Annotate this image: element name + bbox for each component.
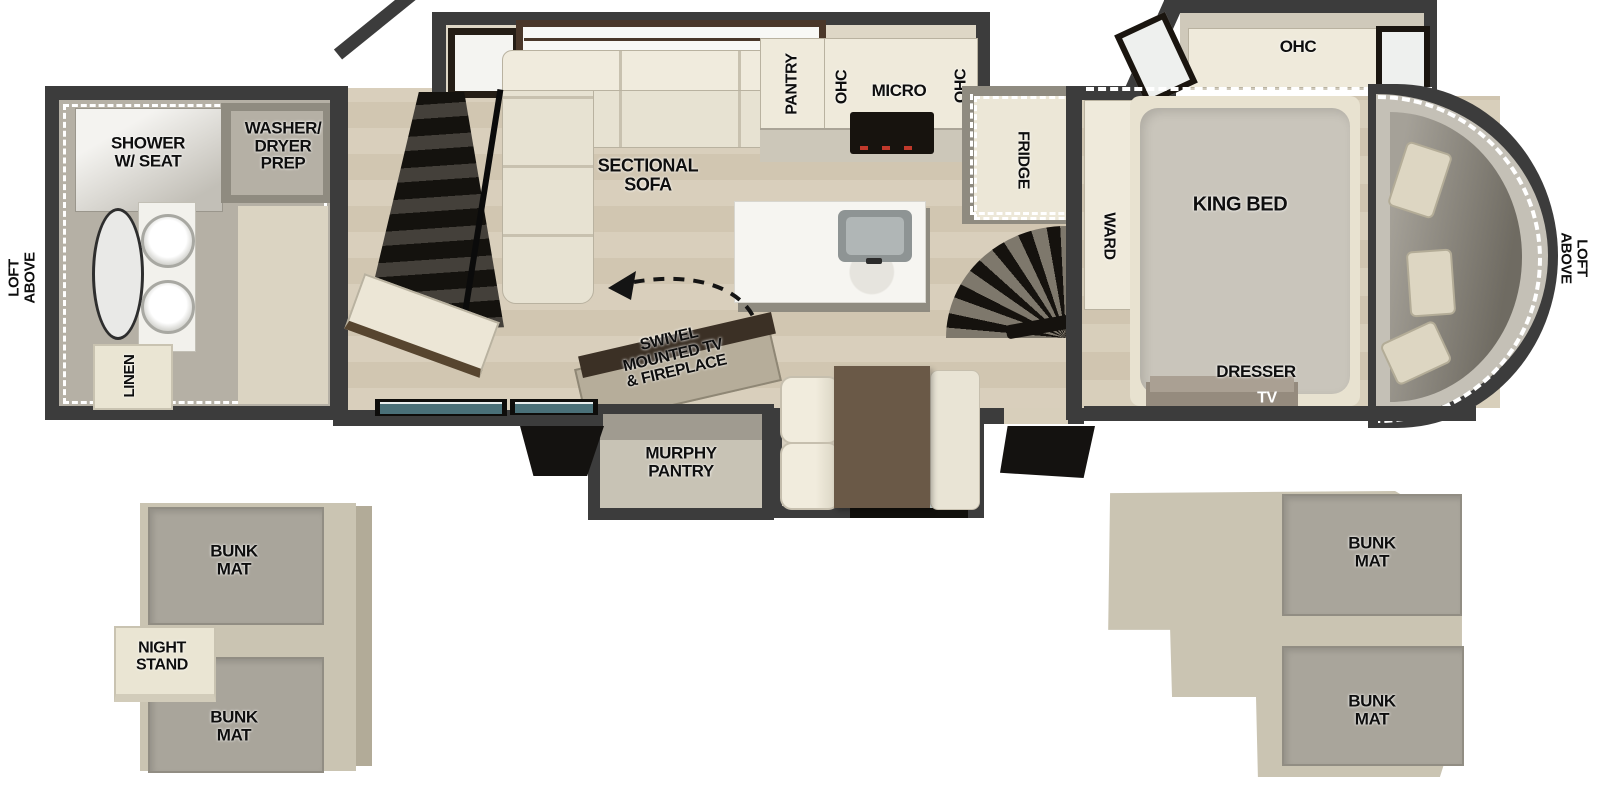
ohc-left-label: OHC [835,70,852,104]
rear-loft-platform-edge [356,506,372,766]
island-faucet [866,258,882,264]
front-loft-bunk-bottom-label: BUNK MAT [1348,692,1396,727]
pantry-label: PANTRY [785,53,802,115]
wardrobe [1084,100,1134,310]
dinette-table [834,366,930,508]
ohc-slide-top-wall [1164,0,1436,13]
vanity-mirror [92,208,144,340]
sectional-sofa-label: SECTIONAL SOFA [598,156,698,193]
living-window-1-glass [380,402,502,414]
bedroom-left-wall [1066,86,1082,420]
loft-dash-fridge-left [970,94,973,212]
tv-label: TV [1257,391,1277,408]
diagonal-front-wall [334,0,440,60]
ward-label: WARD [1100,212,1117,259]
rear-loft-bunk-bottom-label: BUNK MAT [210,708,258,743]
micro-label: MICRO [872,82,927,100]
dinette-chair-1 [780,376,840,444]
fridge-label: FRIDGE [1014,131,1031,189]
sofa-chaise [502,90,594,304]
front-loft-bunk-top-label: BUNK MAT [1348,534,1396,569]
stove-knob-3 [904,146,912,150]
night-stand-label: NIGHT STAND [136,640,188,673]
stove-knob-1 [860,146,868,150]
dinette-chair-2 [780,442,840,510]
bedroom-bottom-wall [1084,406,1476,421]
entry-door-opening [1004,408,1068,424]
loft-above-right-label: LOFT ABOVE [1558,232,1589,283]
island-sink-basin [846,217,904,255]
dresser-label: DRESSER [1216,363,1295,381]
entry-steps [1000,426,1095,478]
vanity-sink-2 [141,280,195,334]
bathroom-landing [238,206,328,404]
floorplan-canvas: SHOWER W/ SEAT WASHER/ DRYER PREP LINEN … [0,0,1600,786]
king-bed-mattress [1140,108,1350,394]
dinette-bench [930,370,980,510]
vanity-sink-1 [141,214,195,268]
murphy-pantry-back [600,414,762,440]
bath-living-divider-wall [330,86,348,420]
rear-loft-bunk-top-label: BUNK MAT [210,542,258,577]
shower-label: SHOWER W/ SEAT [111,134,185,169]
loft-above-left-label: LOFT ABOVE [6,252,37,303]
linen-label: LINEN [122,354,138,397]
stove-knob-2 [882,146,890,150]
king-bed-label: KING BED [1193,195,1288,216]
washer-dryer-label: WASHER/ DRYER PREP [245,119,322,172]
sofa-slide-left-wall [432,12,446,94]
sofa-slide-right-wall [976,12,990,94]
living-window-2-glass [515,402,593,413]
murphy-pantry-label: MURPHY PANTRY [645,444,716,479]
bedroom-ohc-label: OHC [1280,38,1317,56]
